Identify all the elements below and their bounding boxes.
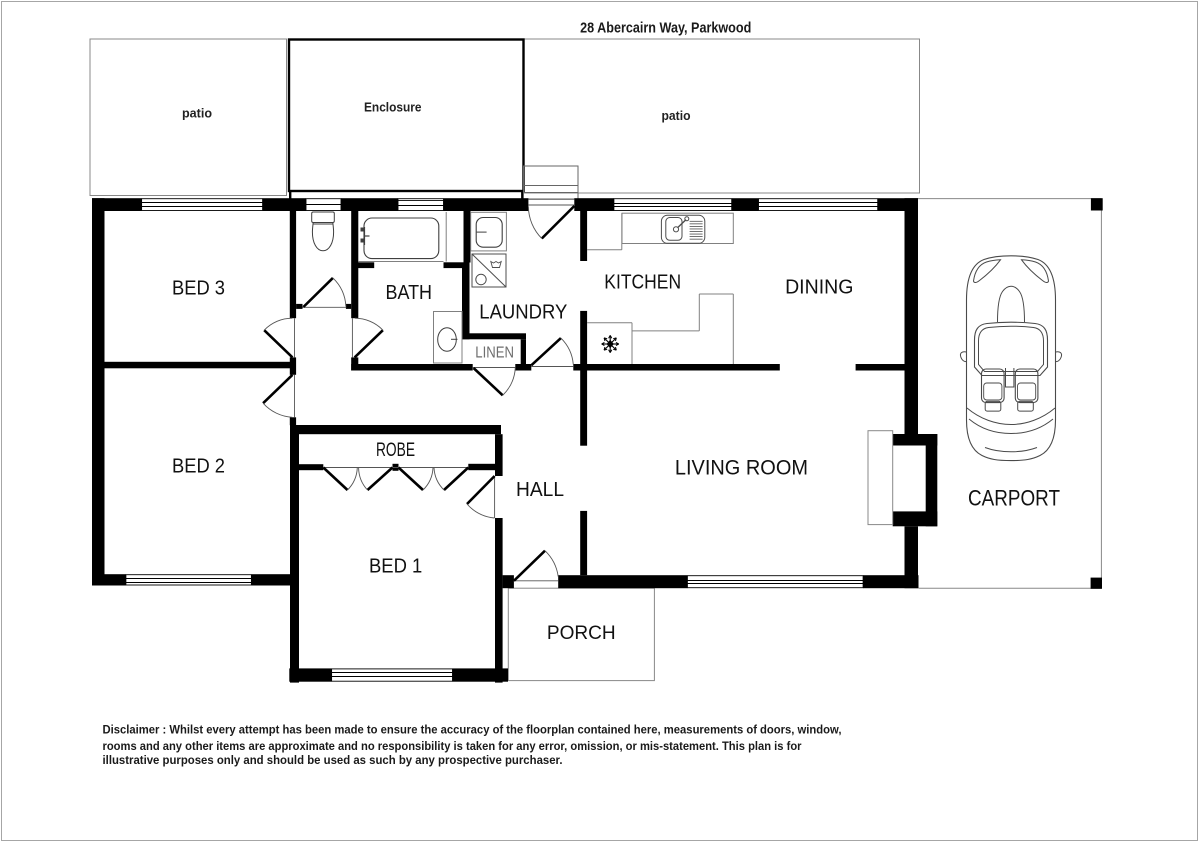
- svg-text:LAUNDRY: LAUNDRY: [479, 301, 567, 324]
- svg-text:LINEN: LINEN: [475, 344, 514, 361]
- svg-text:Disclaimer : Whilst every atte: Disclaimer : Whilst every attempt has be…: [103, 723, 842, 737]
- svg-text:BED 1: BED 1: [369, 555, 422, 578]
- svg-text:HALL: HALL: [516, 478, 564, 501]
- svg-text:28 Abercairn Way, Parkwood: 28 Abercairn Way, Parkwood: [580, 20, 751, 37]
- svg-text:DINING: DINING: [785, 276, 853, 299]
- svg-text:PORCH: PORCH: [547, 622, 616, 644]
- svg-text:BED 2: BED 2: [172, 455, 225, 478]
- svg-text:rooms and any other items are: rooms and any other items are approximat…: [103, 739, 802, 753]
- svg-text:patio: patio: [662, 109, 691, 123]
- svg-text:KITCHEN: KITCHEN: [604, 270, 681, 293]
- svg-text:BATH: BATH: [386, 281, 433, 304]
- svg-text:illustrative purposes only and: illustrative purposes only and should be…: [103, 753, 563, 767]
- svg-text:LIVING ROOM: LIVING ROOM: [675, 456, 808, 479]
- svg-text:patio: patio: [182, 107, 212, 121]
- svg-text:BED 3: BED 3: [172, 277, 225, 300]
- svg-text:Enclosure: Enclosure: [364, 101, 422, 115]
- svg-text:CARPORT: CARPORT: [968, 486, 1060, 511]
- svg-text:ROBE: ROBE: [376, 440, 415, 461]
